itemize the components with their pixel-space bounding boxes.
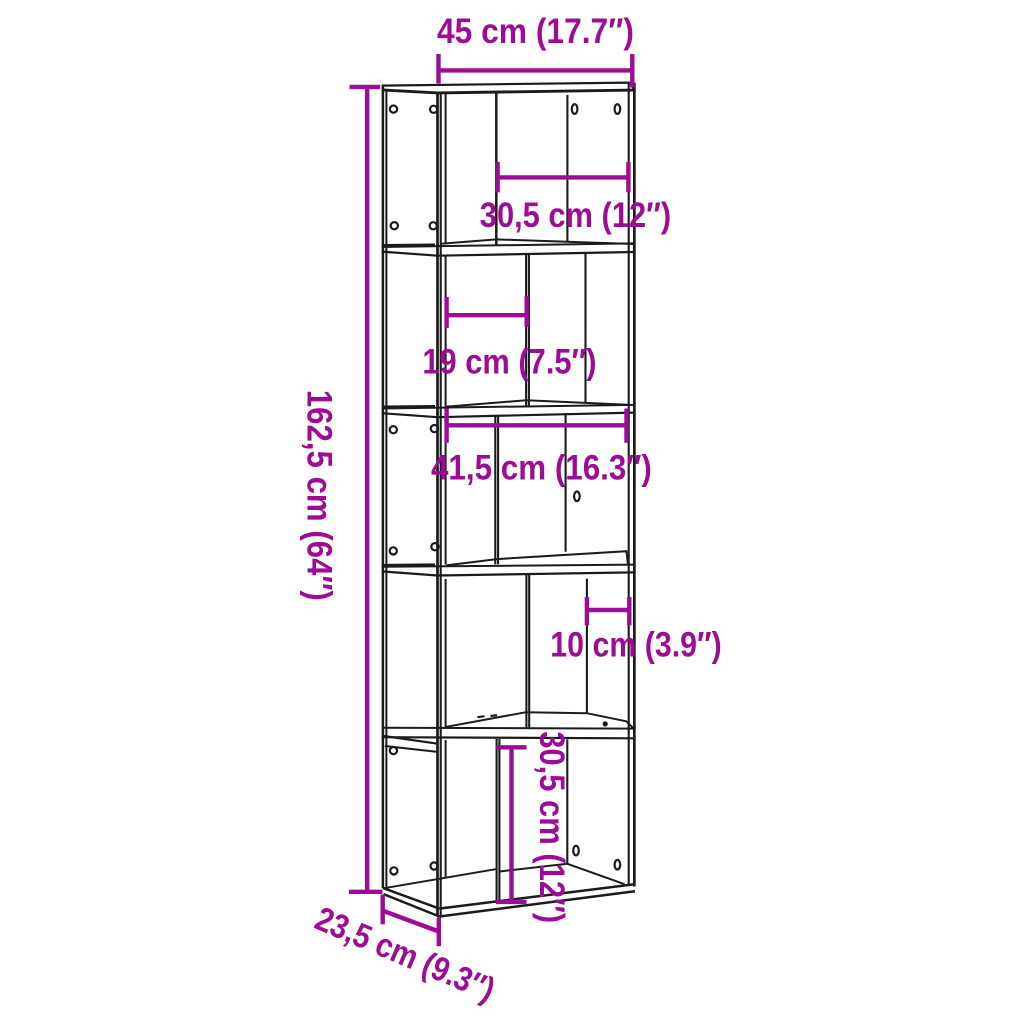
- svg-text:41,5 cm (16.3″): 41,5 cm (16.3″): [431, 448, 652, 488]
- svg-text:30,5 cm (12″): 30,5 cm (12″): [480, 195, 671, 235]
- svg-text:10 cm (3.9″): 10 cm (3.9″): [550, 625, 721, 665]
- svg-text:23,5 cm (9.3″): 23,5 cm (9.3″): [310, 900, 501, 1010]
- svg-text:30,5 cm (12″): 30,5 cm (12″): [532, 731, 572, 923]
- svg-text:19 cm (7.5″): 19 cm (7.5″): [422, 342, 596, 382]
- svg-text:162,5 cm (64″): 162,5 cm (64″): [300, 390, 340, 601]
- svg-text:45 cm (17.7″): 45 cm (17.7″): [437, 11, 634, 51]
